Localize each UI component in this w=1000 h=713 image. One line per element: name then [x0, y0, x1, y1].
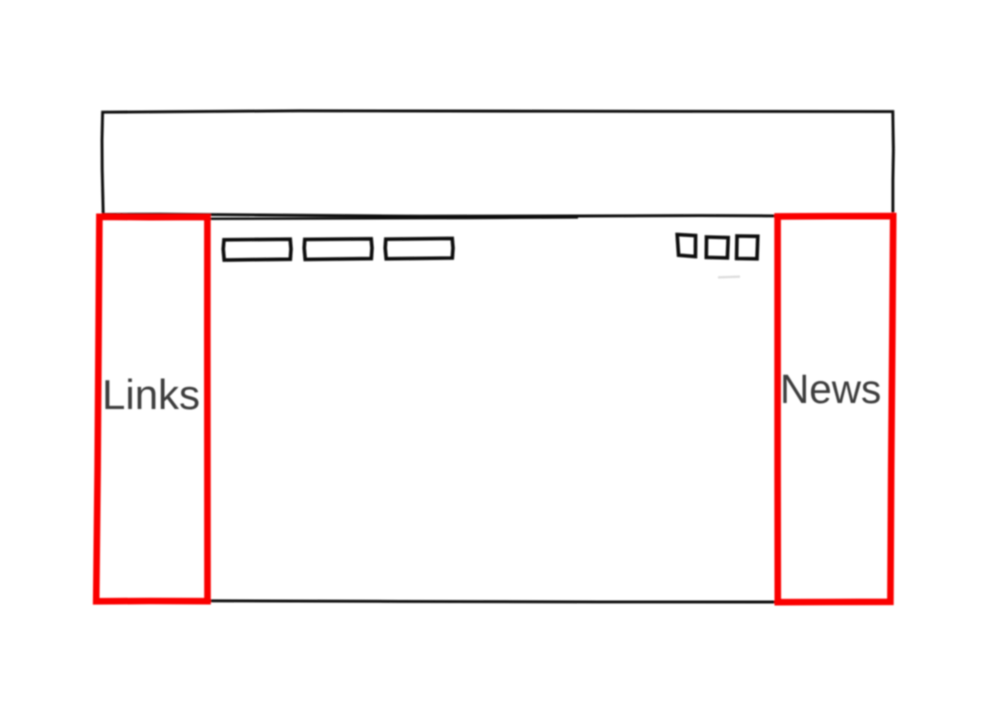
svg-text:News: News [780, 366, 881, 412]
svg-text:Links: Links [102, 371, 200, 418]
